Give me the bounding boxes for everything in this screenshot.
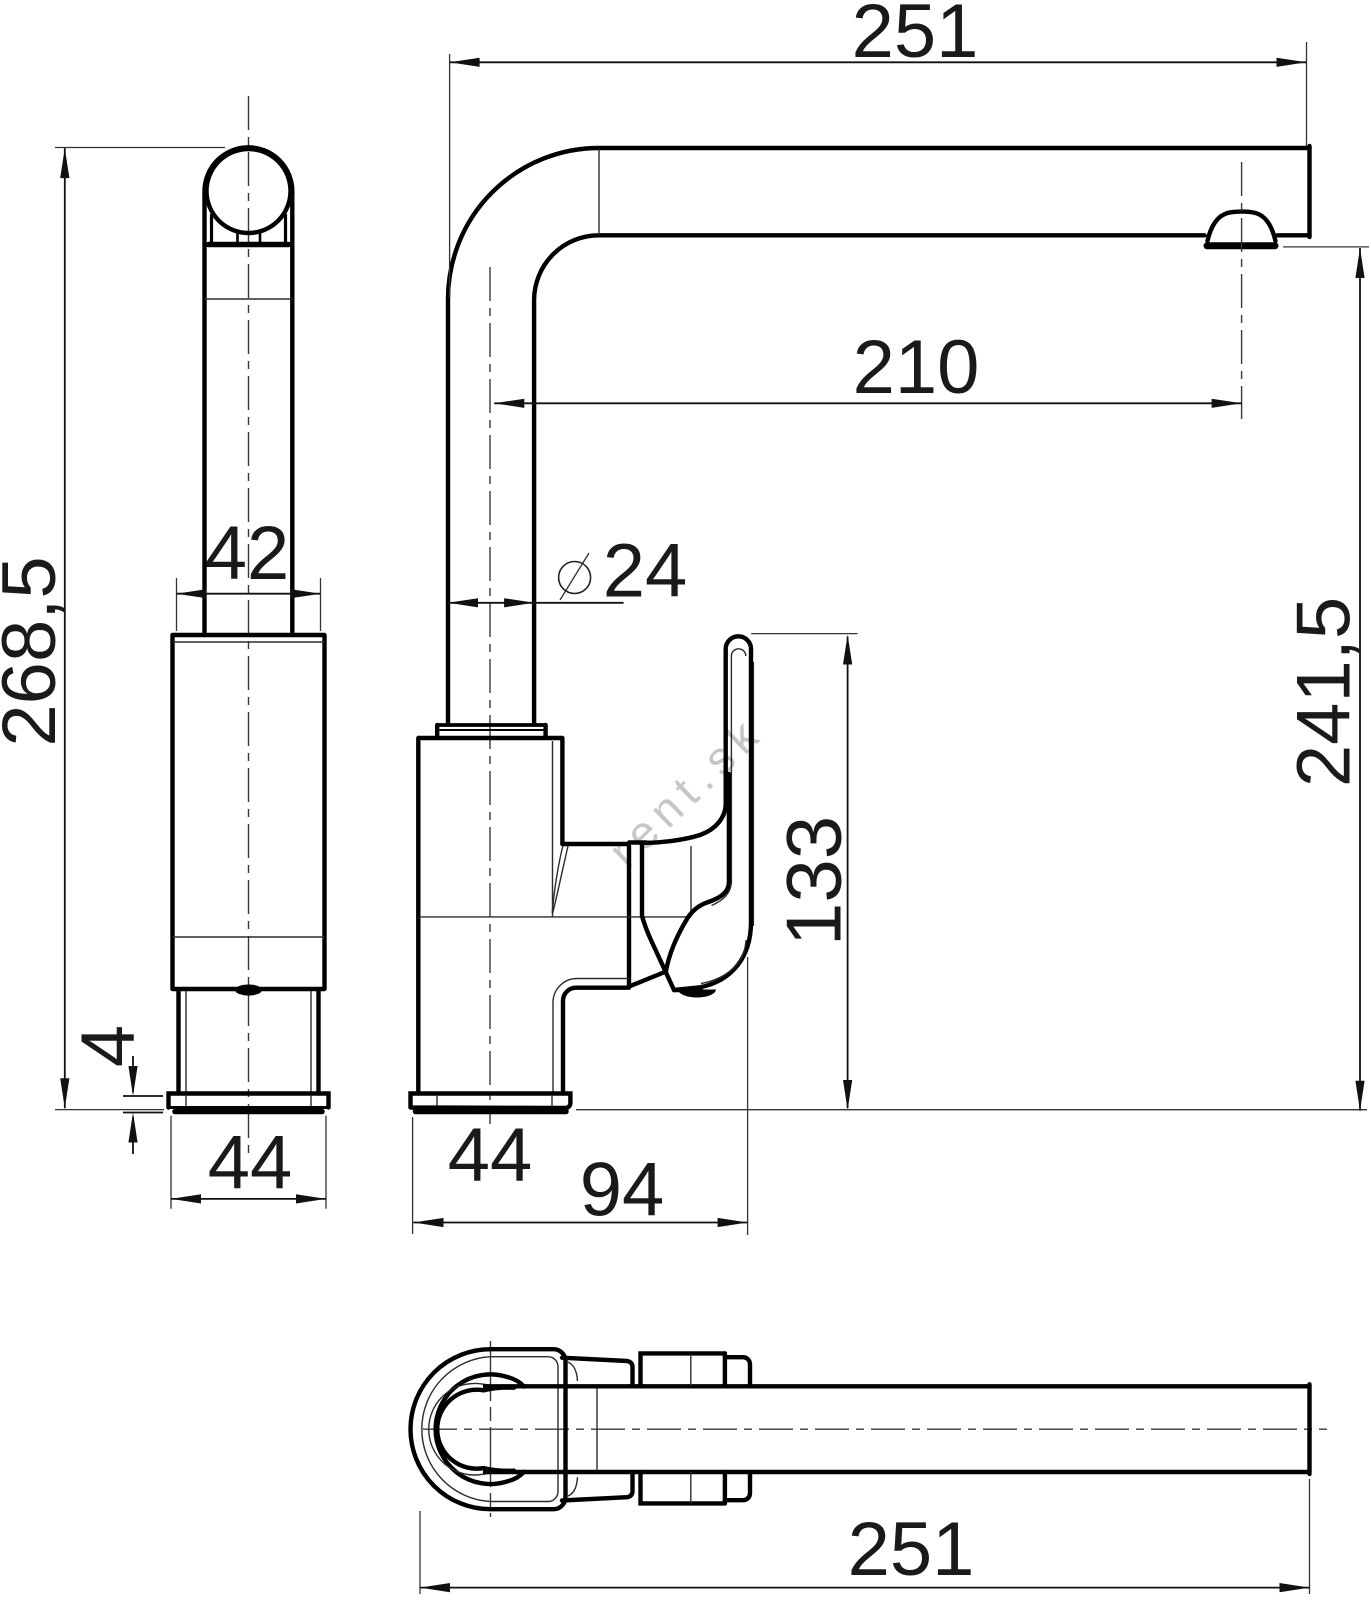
svg-text:42: 42 [205, 511, 290, 596]
svg-text:94: 94 [580, 1148, 665, 1233]
svg-text:251: 251 [848, 1507, 975, 1592]
svg-text:241,5: 241,5 [1282, 597, 1367, 787]
svg-text:4: 4 [66, 1025, 151, 1067]
svg-text:210: 210 [853, 325, 980, 410]
svg-text:251: 251 [852, 0, 979, 74]
svg-text:44: 44 [208, 1121, 293, 1206]
svg-text:268,5: 268,5 [0, 556, 72, 746]
svg-text:133: 133 [769, 816, 857, 946]
svg-text:24: 24 [603, 529, 688, 614]
svg-text:44: 44 [448, 1113, 533, 1198]
